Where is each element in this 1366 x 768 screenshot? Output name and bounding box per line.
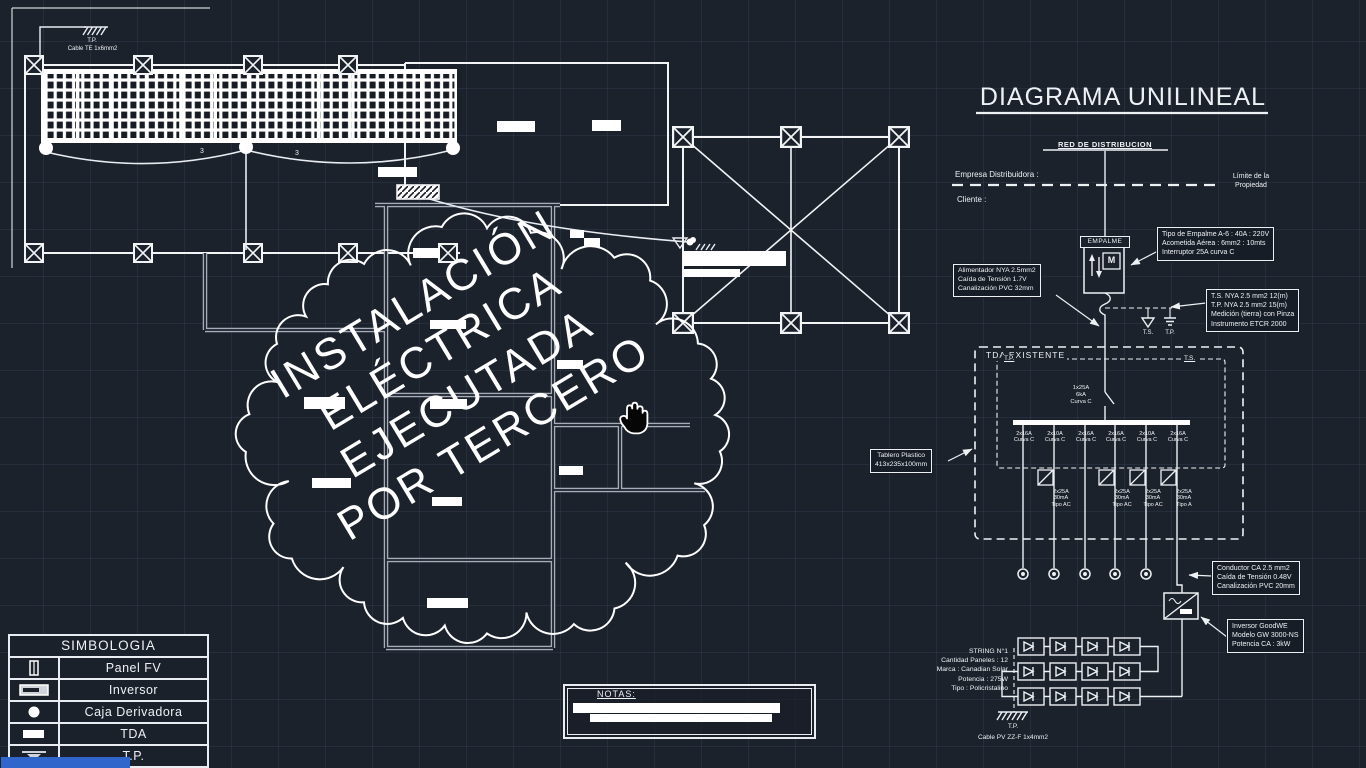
branch-3-label: 2x16ACurva C: [1072, 431, 1100, 444]
callout-inversor: Inversor GoodWE Modelo GW 3000-NS Potenc…: [1227, 619, 1304, 653]
pv-string: [1002, 638, 1182, 705]
hatched-equipment-box: [397, 185, 439, 199]
callout-alimentador-l2: Caída de Tensión 1.7V: [958, 276, 1036, 285]
rcd-1-l3: Tipo AC: [1046, 502, 1076, 508]
callout-empalme-l2: Acometida Aérea : 6mm2 : 10mts: [1162, 239, 1269, 248]
branch-6-label: 2x16ACurva C: [1164, 431, 1192, 444]
callout-tablero-l1: Tablero Plastico: [875, 452, 927, 461]
branch-4-l2: Curva C: [1102, 437, 1130, 443]
simbologia-title: SIMBOLOGIA: [10, 636, 207, 658]
callout-inversor-l3: Potencia CA : 3kW: [1232, 640, 1299, 649]
rcd-2-l3: Tipo AC: [1107, 502, 1137, 508]
branch-3-l2: Curva C: [1072, 437, 1100, 443]
rcd-4-l3: Tipo A: [1169, 502, 1199, 508]
branch-5-l2: Curva C: [1133, 437, 1161, 443]
callout-tablero: Tablero Plastico 413x235x100mm: [870, 449, 932, 473]
branch-5-label: 2x10ACurva C: [1133, 431, 1161, 444]
callout-medicion: T.S. NYA 2.5 mm2 12(m) T.P. NYA 2.5 mm2 …: [1206, 289, 1299, 332]
limite-line-2: Propiedad: [1220, 181, 1282, 190]
simbologia-label: Caja Derivadora: [60, 702, 207, 722]
simbologia-label: TDA: [60, 724, 207, 744]
inverter-symbol: [1164, 593, 1198, 619]
callout-medicion-l4: Instrumento ETCR 2000: [1211, 320, 1294, 329]
simbologia-label: Inversor: [60, 680, 207, 700]
limite-propiedad-label: Límite de la Propiedad: [1220, 172, 1282, 190]
callout-alimentador-l1: Alimentador NYA 2.5mm2: [958, 267, 1036, 276]
main-breaker-label: 1x25A 6kA Curva C: [1062, 385, 1100, 406]
notas-redacted-line-2: [590, 714, 772, 722]
branch-2-l2: Curva C: [1041, 437, 1069, 443]
main-breaker-l3: Curva C: [1062, 399, 1100, 406]
callout-conductor-l3: Canalización PVC 20mm: [1217, 582, 1295, 591]
tda-tp-label: T.P.: [1002, 355, 1016, 363]
red-distribucion-label: RED DE DISTRIBUCION: [1043, 140, 1167, 149]
simbologia-label: Panel FV: [60, 658, 207, 678]
solar-array: [42, 70, 456, 142]
callout-medicion-l2: T.P. NYA 2.5 mm2 15(m): [1211, 301, 1294, 310]
pan-hand-cursor-icon: [612, 400, 656, 444]
rcd-1-label: 2x25A30mATipo AC: [1046, 489, 1076, 508]
string-info-l3: Marca : Canadian Solar: [898, 665, 1008, 674]
string-info-l1: STRING N°1: [898, 647, 1008, 656]
callout-medicion-l1: T.S. NYA 2.5 mm2 12(m): [1211, 292, 1294, 301]
callout-medicion-l3: Medición (tierra) con Pinza: [1211, 310, 1294, 319]
branch-4-label: 2x16ACurva C: [1102, 431, 1130, 444]
callout-empalme-l1: Tipo de Empalme A-6 : 40A : 220V: [1162, 230, 1269, 239]
callout-conductor-l1: Conductor CA 2.5 mm2: [1217, 564, 1295, 573]
callout-empalme-l3: Interruptor 25A curva C: [1162, 248, 1269, 257]
notas-title: NOTAS:: [597, 689, 636, 699]
string-info-l5: Tipo : Policristalino: [898, 684, 1008, 693]
callout-conductor: Conductor CA 2.5 mm2 Caída de Tensión 0.…: [1212, 561, 1300, 595]
string-info-l2: Cantidad Paneles : 12: [898, 656, 1008, 665]
roof-earth-tp-label: T.P.: [78, 38, 106, 46]
meter-letter: M: [1103, 255, 1120, 266]
notas-redacted-line-1: [573, 703, 780, 713]
string-cable-label: Cable PV ZZ-F 1x4mm2: [943, 734, 1083, 742]
main-breaker-l1: 1x25A: [1062, 385, 1100, 392]
string-info-l4: Potencia : 275W: [898, 675, 1008, 684]
span-label-1: 3: [200, 148, 204, 157]
simbologia-row-tda: TDA: [10, 724, 207, 746]
tda-icon: [10, 724, 60, 744]
main-breaker-l2: 6kA: [1062, 392, 1100, 399]
branch-1-label: 2x16ACurva C: [1010, 431, 1038, 444]
inversor-icon: [10, 680, 60, 700]
caja-derivadora-icon: [10, 702, 60, 722]
callout-inversor-l1: Inversor GoodWE: [1232, 622, 1299, 631]
ts-label: T.S.: [1138, 330, 1158, 338]
plan-ground-symbol: [673, 237, 715, 250]
simbologia-row-inversor: Inversor: [10, 680, 207, 702]
empalme-plate: EMPALME: [1080, 236, 1130, 248]
string-tp-label: T.P.: [997, 723, 1029, 731]
branch-2-label: 2x10ACurva C: [1041, 431, 1069, 444]
simbologia-table: SIMBOLOGIA Panel FV Inversor Caja Deriva…: [8, 634, 209, 768]
panel-fv-icon: [10, 658, 60, 678]
callout-conductor-l2: Caída de Tensión 0.48V: [1217, 573, 1295, 582]
single-line-diagram: [948, 113, 1268, 720]
page-title: DIAGRAMA UNILINEAL: [975, 82, 1271, 113]
string-info: STRING N°1 Cantidad Paneles : 12 Marca :…: [898, 647, 1008, 693]
callout-alimentador-l3: Canalización PVC 32mm: [958, 285, 1036, 294]
callout-tablero-l2: 413x235x100mm: [875, 461, 927, 470]
simbologia-row-caja-derivadora: Caja Derivadora: [10, 702, 207, 724]
span-label-2: 3: [295, 150, 299, 159]
selection-highlight: [1, 757, 130, 768]
branch-1-l2: Curva C: [1010, 437, 1038, 443]
branch-6-l2: Curva C: [1164, 437, 1192, 443]
simbologia-row-panel-fv: Panel FV: [10, 658, 207, 680]
roof-earth-cable-label: Cable TE 1x6mm2: [50, 46, 135, 54]
cad-viewport[interactable]: T.P. Cable TE 1x6mm2 3 3 INSTALACIÓN ELÉ…: [0, 0, 1366, 768]
limite-line-1: Límite de la: [1220, 172, 1282, 181]
rcd-4-label: 2x25A30mATipo A: [1169, 489, 1199, 508]
rcd-2-label: 2x25A30mATipo AC: [1107, 489, 1137, 508]
rcd-3-label: 2x25A30mATipo AC: [1138, 489, 1168, 508]
rcd-3-l3: Tipo AC: [1138, 502, 1168, 508]
tda-ts-label: T.S.: [1182, 355, 1197, 363]
tp-label: T.P.: [1160, 330, 1180, 338]
empresa-label: Empresa Distribuidora :: [955, 170, 1039, 180]
tda-existente-title: TDA EXISTENTE: [984, 350, 1067, 361]
callout-inversor-l2: Modelo GW 3000-NS: [1232, 631, 1299, 640]
cliente-label: Cliente :: [957, 195, 986, 205]
callout-alimentador: Alimentador NYA 2.5mm2 Caída de Tensión …: [953, 264, 1041, 297]
callout-empalme: Tipo de Empalme A-6 : 40A : 220V Acometi…: [1157, 227, 1274, 261]
